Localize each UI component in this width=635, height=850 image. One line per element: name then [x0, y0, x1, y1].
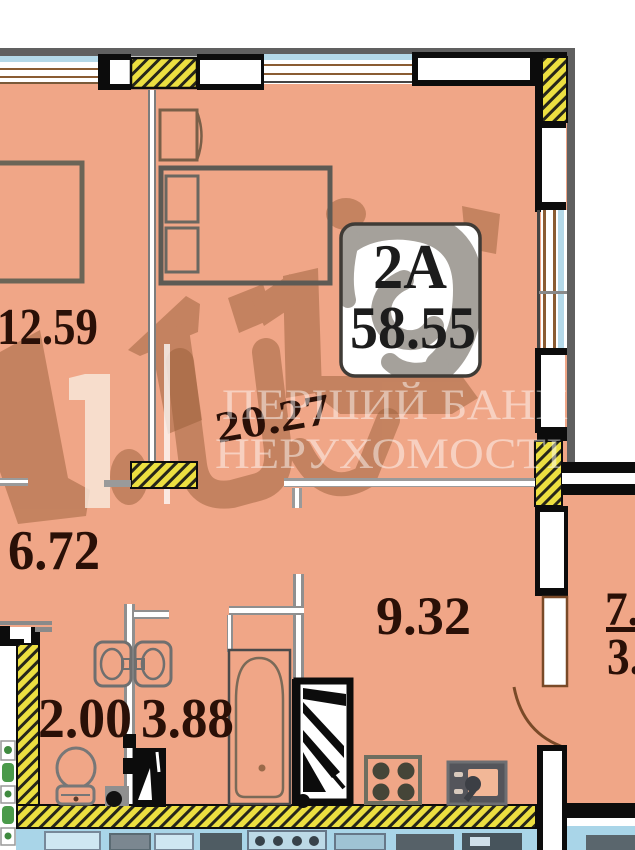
- svg-text:НЕРУХОМОСТІ: НЕРУХОМОСТІ: [215, 431, 562, 478]
- svg-text:ПЕРШИЙ БАНК: ПЕРШИЙ БАНК: [222, 382, 567, 429]
- svg-text:9.32: 9.32: [376, 586, 471, 646]
- svg-text:58.55: 58.55: [350, 295, 476, 361]
- svg-text:6.72: 6.72: [8, 520, 100, 582]
- svg-text:2.00: 2.00: [38, 688, 132, 750]
- svg-text:3.: 3.: [607, 629, 635, 686]
- svg-text:2A: 2A: [373, 231, 447, 302]
- svg-text:3.88: 3.88: [141, 688, 234, 750]
- svg-text:12.59: 12.59: [0, 299, 98, 356]
